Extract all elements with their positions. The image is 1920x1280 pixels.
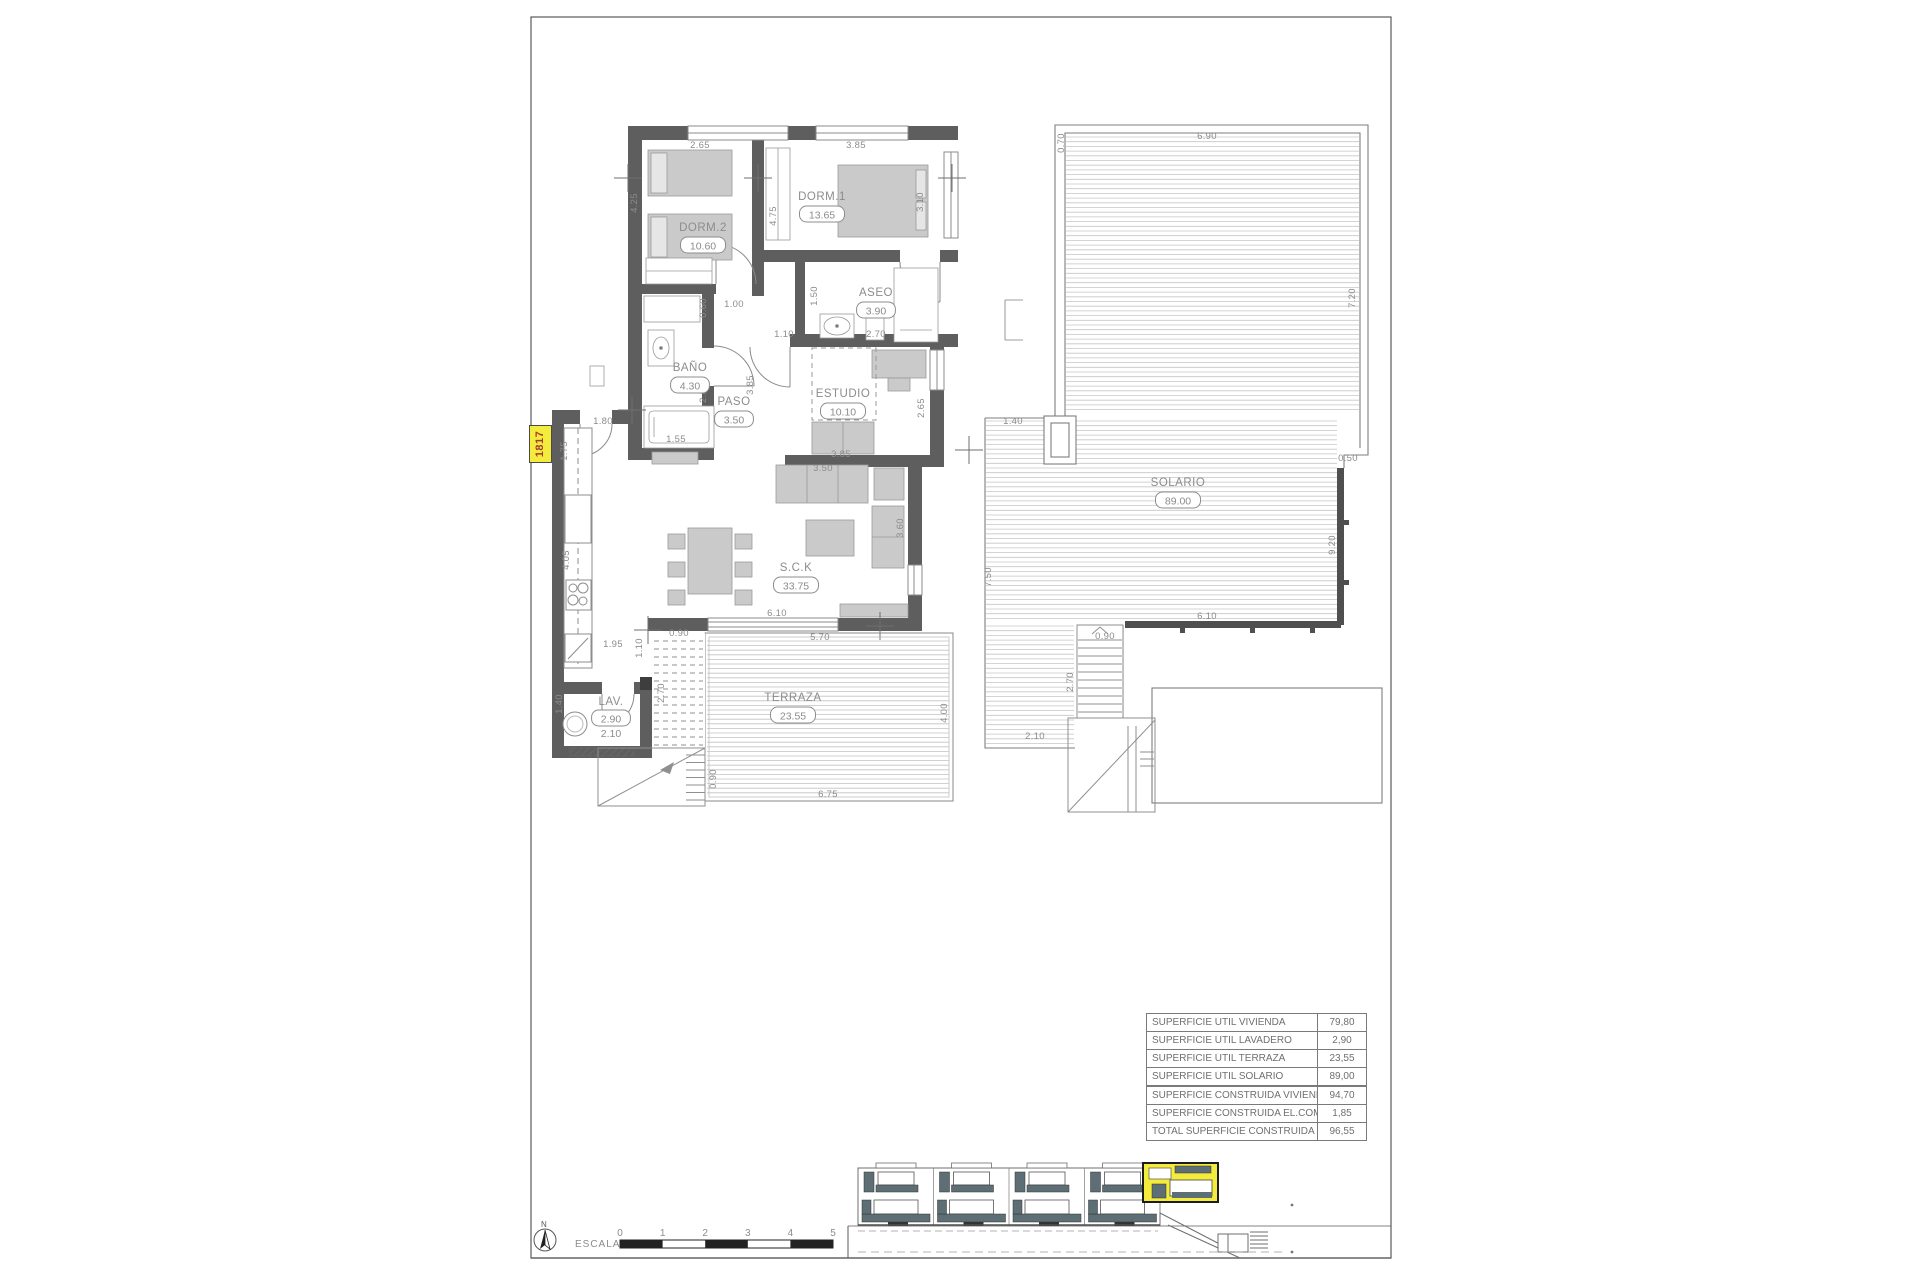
scale-tick-label: 4 xyxy=(788,1228,794,1239)
dimension-label: 3.85 xyxy=(745,375,756,395)
dimension-label: 5.70 xyxy=(810,632,830,643)
dimension-label: 7.20 xyxy=(1347,288,1358,308)
table-row-label: SUPERFICIE ÚTIL SOLARIO xyxy=(1147,1071,1317,1082)
table-row: SUPERFICIE ÚTIL LAVADERO2,90 xyxy=(1146,1031,1367,1050)
dimension-label: 0.90 xyxy=(669,628,689,639)
terrace-deck xyxy=(705,633,953,801)
washing-machine-icon xyxy=(563,712,587,736)
room-area-label: 3.50 xyxy=(724,415,745,427)
table-row: SUPERFICIE CONSTRUIDA EL.COMUNES1,85 xyxy=(1146,1104,1367,1123)
dimension-label: 1.80 xyxy=(593,416,613,427)
room-area-label: 10.10 xyxy=(830,407,856,419)
dimension-label: 1.55 xyxy=(666,434,686,445)
dimension-label: 1.10 xyxy=(634,638,645,658)
dimension-label: 2.70 xyxy=(656,683,667,703)
table-row-value: 2,90 xyxy=(1317,1032,1366,1049)
room-area-label: 33.75 xyxy=(783,581,809,593)
built-areas-table: SUPERFICIE CONSTRUIDA VIVIENDA94,70SUPER… xyxy=(1146,1087,1367,1141)
dimension-label: 0.90 xyxy=(708,769,719,789)
dimension-label: 2.65 xyxy=(690,140,710,151)
room-name-label: BAÑO xyxy=(673,361,708,374)
room-extra-label: 2.10 xyxy=(601,728,622,740)
util-areas-table: SUPERFICIE ÚTIL VIVIENDA79,80SUPERFICIE … xyxy=(1146,1014,1367,1086)
dimension-label: 6.90 xyxy=(1197,131,1217,142)
dimension-label: 6.10 xyxy=(767,608,787,619)
dimension-label: 4.05 xyxy=(561,550,572,570)
scale-tick-label: 3 xyxy=(745,1228,751,1239)
vent-grille-icon xyxy=(570,748,634,756)
room-name-label: TERRAZA xyxy=(764,692,821,704)
room-name-label: LAV. xyxy=(598,696,623,708)
dimension-label: 1.75 xyxy=(559,441,570,461)
dimension-label: 2.10 xyxy=(1025,731,1045,742)
table-row-label: SUPERFICIE CONSTRUIDA VIVIENDA xyxy=(1147,1090,1317,1101)
dimension-label: 3.60 xyxy=(895,518,906,538)
room-area-label: 4.30 xyxy=(680,381,701,393)
room-area-label: 89.00 xyxy=(1165,496,1191,508)
room-area-label: 3.90 xyxy=(866,306,887,318)
dimension-label: 0.60 xyxy=(698,298,709,318)
table-row: SUPERFICIE ÚTIL VIVIENDA79,80 xyxy=(1146,1013,1367,1032)
room-area-label: 2.90 xyxy=(601,714,622,726)
plan-sheet: 2.653.854.254.753.101.502.700.601.001.10… xyxy=(0,0,1920,1280)
dimension-label: 4.25 xyxy=(629,193,640,213)
dimension-label: 1.95 xyxy=(603,639,623,650)
room-name-label: S.C.K xyxy=(780,562,813,574)
room-name-label: SOLARIO xyxy=(1151,477,1206,489)
table-row-label: SUPERFICIE ÚTIL TERRAZA xyxy=(1147,1053,1317,1064)
scale-tick-label: 5 xyxy=(830,1228,836,1239)
highlighted-unit xyxy=(1143,1163,1218,1202)
table-row-value: 89,00 xyxy=(1317,1068,1366,1085)
scale-tick-label: 2 xyxy=(702,1228,708,1239)
unit-number-tag: 1817 xyxy=(529,425,552,463)
dimension-label: 4.75 xyxy=(768,206,779,226)
dimension-label: 1.00 xyxy=(724,299,744,310)
dimension-label: 3.85 xyxy=(846,140,866,151)
scale-tick-label: 0 xyxy=(617,1228,623,1239)
table-row-value: 79,80 xyxy=(1317,1014,1366,1031)
table-row-value: 94,70 xyxy=(1317,1087,1366,1104)
dimension-label: 4.00 xyxy=(939,703,950,723)
table-row-value: 96,55 xyxy=(1317,1123,1366,1140)
dimension-label: 3.85 xyxy=(831,449,851,460)
dimension-label: 1.40 xyxy=(1003,416,1023,427)
kitchen-counter xyxy=(564,428,592,668)
dimension-label: 9.20 xyxy=(1327,535,1338,555)
building-elevation xyxy=(858,1163,1293,1258)
dimension-label: 7.50 xyxy=(983,567,994,587)
solario-plan xyxy=(985,125,1382,812)
dimension-label: 0.70 xyxy=(1056,133,1067,153)
dimension-label: 6.75 xyxy=(818,789,838,800)
table-row-value: 1,85 xyxy=(1317,1105,1366,1122)
north-arrow-icon: N xyxy=(534,1220,556,1251)
room-name-label: PASO xyxy=(717,396,750,408)
room-area-label: 10.60 xyxy=(690,241,716,253)
dimension-label: 1.10 xyxy=(774,329,794,340)
table-row-value: 23,55 xyxy=(1317,1050,1366,1067)
table-row: SUPERFICIE CONSTRUIDA VIVIENDA94,70 xyxy=(1146,1086,1367,1105)
scale-bar: ESCALA : 012345 xyxy=(575,1228,836,1250)
dimension-label: 3.10 xyxy=(915,192,926,212)
table-row: TOTAL SUPERFICIE CONSTRUIDA96,55 xyxy=(1146,1122,1367,1141)
svg-text:N: N xyxy=(541,1220,547,1229)
room-name-label: DORM.2 xyxy=(679,222,727,234)
dimension-label: 2.65 xyxy=(916,398,927,418)
dimension-label: 1.40 xyxy=(554,694,565,714)
room-name-label: ASEO xyxy=(859,287,893,299)
dimension-label: 1.50 xyxy=(809,286,820,306)
dimension-label: 0.90 xyxy=(1095,631,1115,642)
scale-tick-label: 1 xyxy=(660,1228,666,1239)
table-row-label: SUPERFICIE ÚTIL VIVIENDA xyxy=(1147,1017,1317,1028)
room-area-label: 13.65 xyxy=(809,210,835,222)
room-name-label: ESTUDIO xyxy=(816,388,871,400)
floor-plan-drawing: 2.653.854.254.753.101.502.700.601.001.10… xyxy=(0,0,1920,1280)
room-name-label: DORM.1 xyxy=(798,191,846,203)
table-row: SUPERFICIE ÚTIL TERRAZA23,55 xyxy=(1146,1049,1367,1068)
table-row-label: SUPERFICIE CONSTRUIDA EL.COMUNES xyxy=(1147,1108,1317,1119)
table-row-label: SUPERFICIE ÚTIL LAVADERO xyxy=(1147,1035,1317,1046)
table-row: SUPERFICIE ÚTIL SOLARIO89,00 xyxy=(1146,1067,1367,1086)
dimension-label: 2.70 xyxy=(866,329,886,340)
table-row-label: TOTAL SUPERFICIE CONSTRUIDA xyxy=(1147,1126,1317,1137)
dimension-label: 6.10 xyxy=(1197,611,1217,622)
dimension-label: 3.50 xyxy=(813,463,833,474)
dimension-label: 0.50 xyxy=(1338,453,1358,464)
room-area-label: 23.55 xyxy=(780,711,806,723)
dimension-label: 2.70 xyxy=(1065,672,1076,692)
